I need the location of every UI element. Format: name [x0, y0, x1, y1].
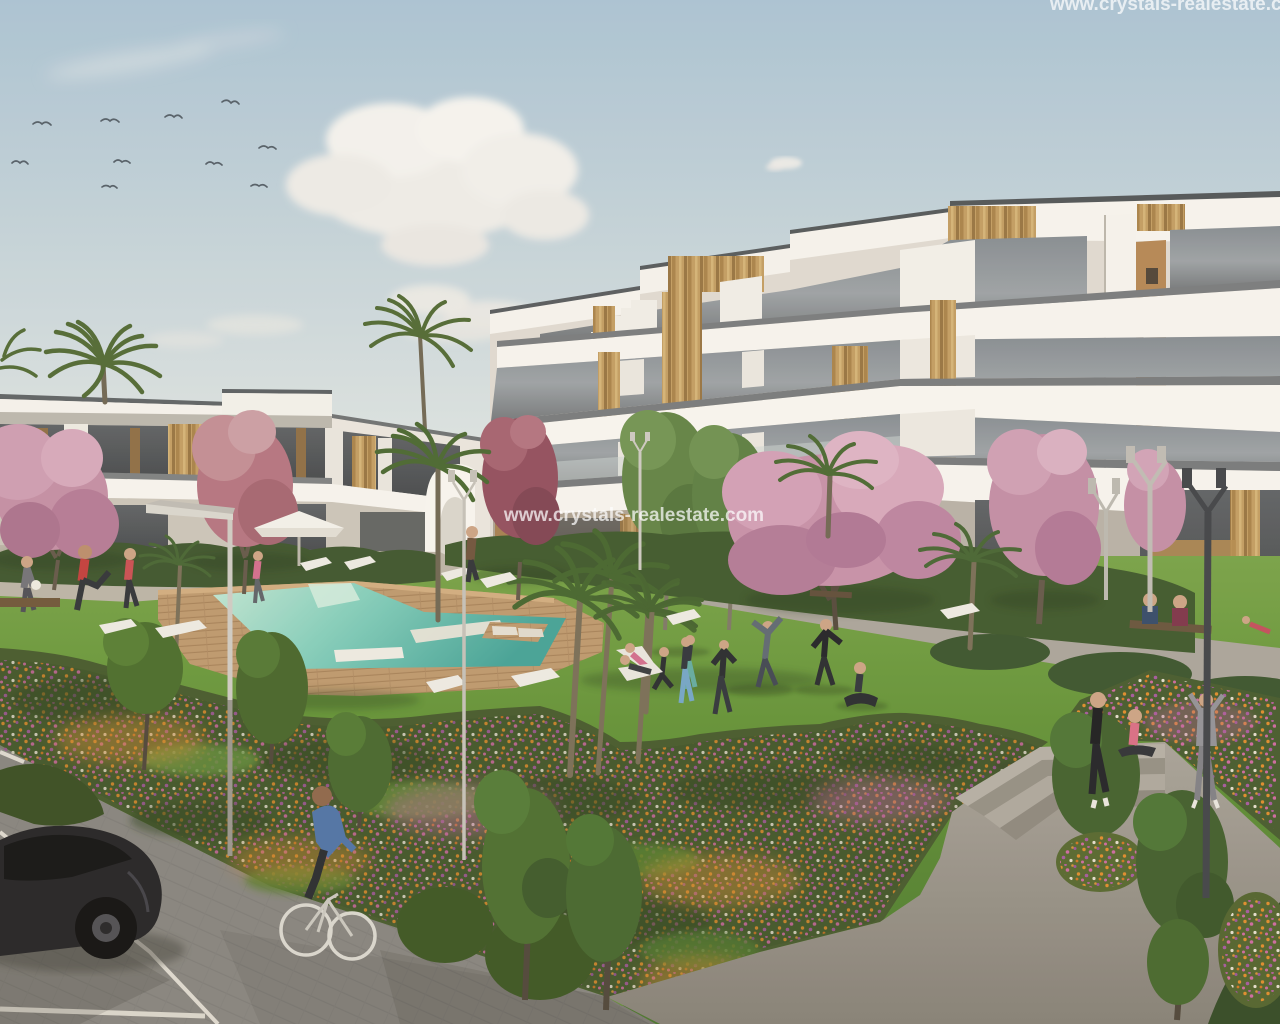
svg-text:www.crystals-realestate.com: www.crystals-realestate.com — [1049, 0, 1280, 15]
svg-text:www.crystals-realestate.com: www.crystals-realestate.com — [503, 505, 764, 526]
